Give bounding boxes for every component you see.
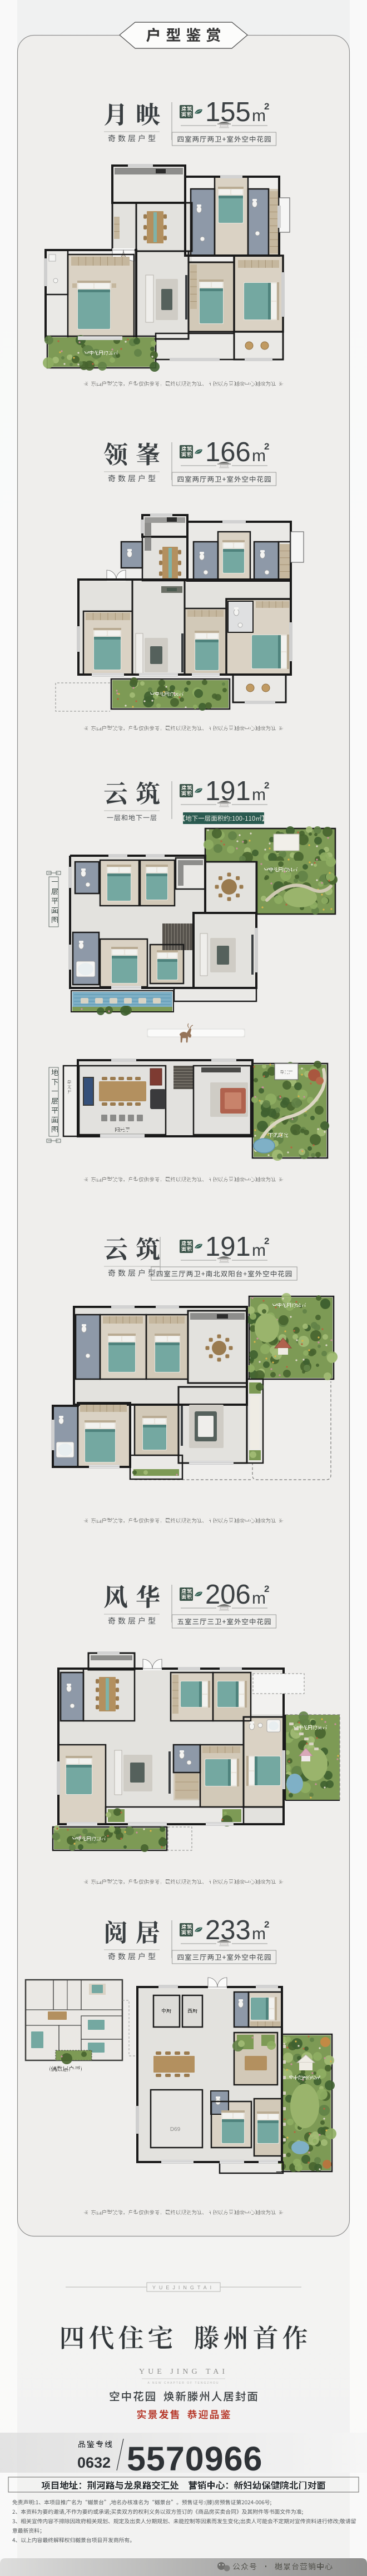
svg-text:2: 2 [264, 1919, 269, 1930]
svg-text:D69: D69 [170, 2126, 181, 2133]
svg-text:5570966: 5570966 [127, 2440, 262, 2478]
svg-text:YUEJINGTAI: YUEJINGTAI [152, 2285, 215, 2290]
svg-text:2: 2 [264, 1236, 269, 1246]
svg-text:2: 2 [264, 780, 269, 791]
svg-text:A NEW CHAPTER OF TENGZHOU: A NEW CHAPTER OF TENGZHOU [147, 2382, 219, 2385]
svg-text:2: 2 [264, 1584, 269, 1594]
svg-text:YUE JING TAI: YUE JING TAI [139, 2368, 228, 2376]
svg-text:2: 2 [264, 101, 269, 112]
svg-text:2: 2 [264, 441, 269, 452]
svg-text:0632: 0632 [77, 2454, 111, 2471]
